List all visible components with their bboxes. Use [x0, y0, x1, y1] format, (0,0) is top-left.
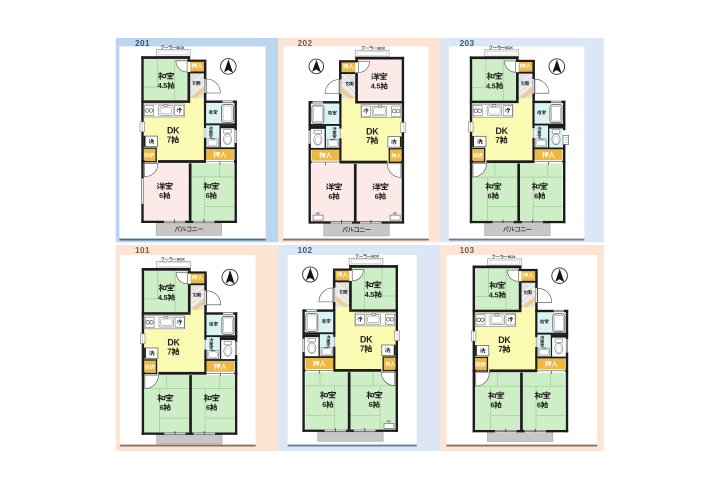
svg-text:BOX: BOX — [371, 255, 379, 259]
svg-text:4.5: 4.5 — [158, 81, 168, 90]
svg-text:AC: AC — [387, 420, 392, 424]
svg-text:BOX: BOX — [177, 258, 185, 262]
svg-text:7: 7 — [366, 136, 370, 145]
svg-text:6: 6 — [534, 191, 538, 200]
svg-text:AC: AC — [393, 211, 398, 215]
svg-text:203: 203 — [460, 39, 475, 48]
svg-text:6: 6 — [328, 192, 332, 201]
svg-text:6: 6 — [206, 403, 210, 412]
svg-text:4.5: 4.5 — [158, 293, 168, 302]
svg-text:4.5: 4.5 — [486, 81, 496, 90]
svg-text:7: 7 — [167, 136, 171, 145]
svg-text:AC: AC — [316, 211, 321, 215]
svg-text:6: 6 — [206, 191, 210, 200]
svg-text:102: 102 — [298, 246, 313, 255]
svg-text:BOX: BOX — [177, 46, 185, 50]
svg-text:6: 6 — [488, 191, 492, 200]
svg-text:DK: DK — [167, 337, 180, 347]
svg-text:7: 7 — [495, 136, 499, 145]
svg-text:202: 202 — [298, 39, 313, 48]
svg-text:7: 7 — [498, 345, 502, 354]
svg-text:DK: DK — [167, 126, 180, 136]
svg-text:BOX: BOX — [377, 46, 385, 50]
svg-text:6: 6 — [490, 400, 494, 409]
svg-text:101: 101 — [135, 246, 150, 255]
svg-text:BOX: BOX — [508, 255, 516, 259]
svg-text:7: 7 — [360, 345, 364, 354]
svg-text:7: 7 — [167, 347, 171, 356]
svg-text:103: 103 — [460, 246, 475, 255]
svg-text:201: 201 — [135, 39, 150, 48]
svg-text:DK: DK — [360, 335, 373, 345]
svg-text:6: 6 — [322, 400, 326, 409]
svg-text:DK: DK — [498, 335, 511, 345]
svg-text:DK: DK — [366, 126, 379, 136]
svg-text:BOX: BOX — [505, 46, 513, 50]
svg-text:4.5: 4.5 — [365, 290, 375, 299]
svg-text:6: 6 — [159, 191, 163, 200]
svg-text:6: 6 — [537, 400, 541, 409]
svg-text:4.5: 4.5 — [489, 290, 499, 299]
svg-text:6: 6 — [369, 400, 373, 409]
svg-text:4.5: 4.5 — [371, 82, 381, 91]
svg-text:6: 6 — [160, 403, 164, 412]
svg-text:6: 6 — [375, 192, 379, 201]
svg-text:DK: DK — [495, 126, 508, 136]
